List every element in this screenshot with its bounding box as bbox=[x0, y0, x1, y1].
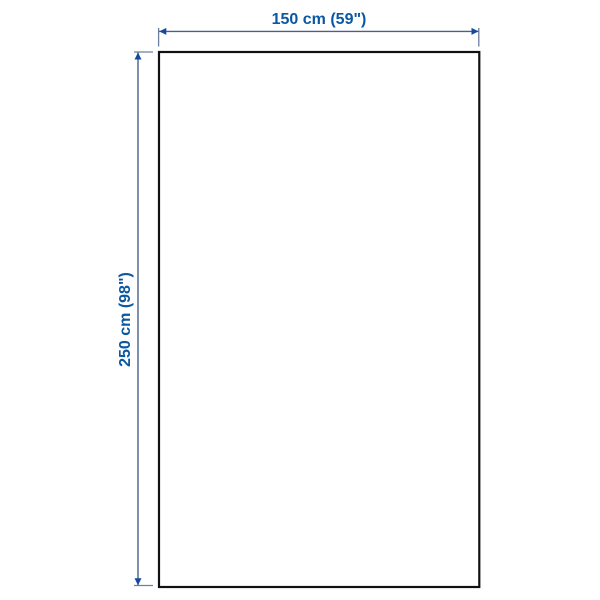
svg-text:250 cm (98"): 250 cm (98") bbox=[117, 272, 134, 367]
svg-text:150 cm (59"): 150 cm (59") bbox=[272, 11, 367, 28]
